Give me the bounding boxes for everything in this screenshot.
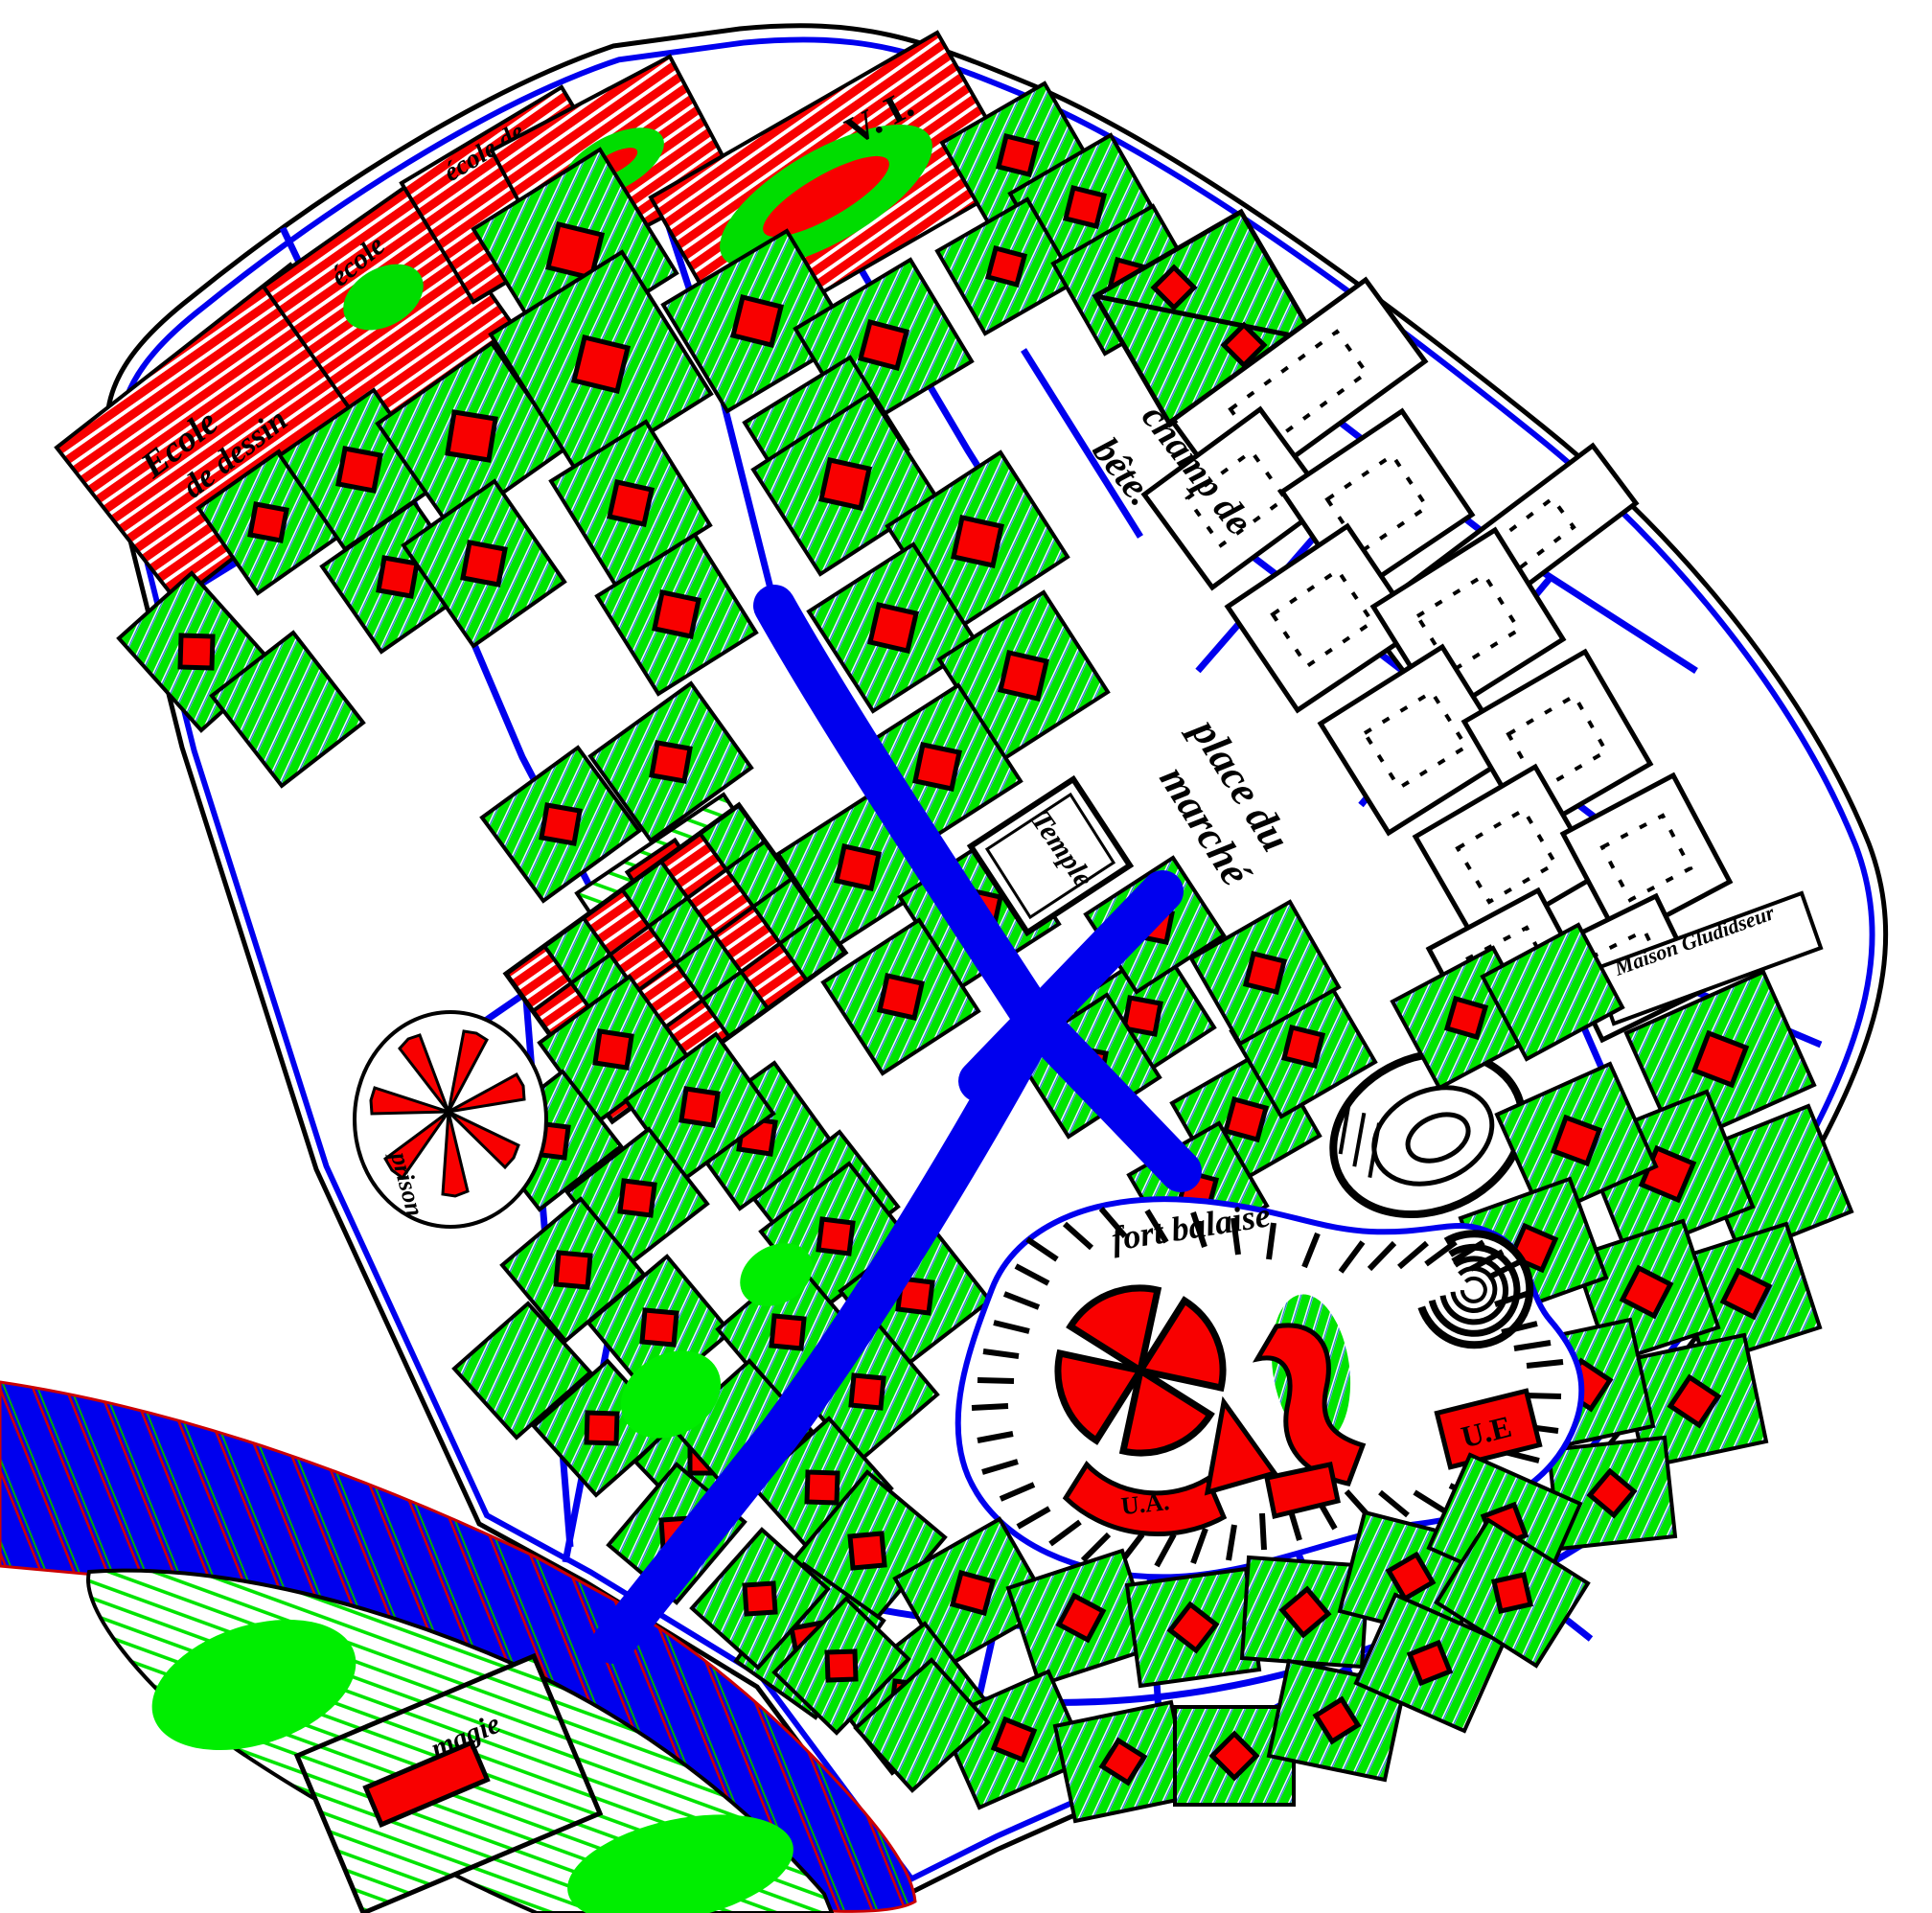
- svg-text:U.A.: U.A.: [1119, 1487, 1170, 1520]
